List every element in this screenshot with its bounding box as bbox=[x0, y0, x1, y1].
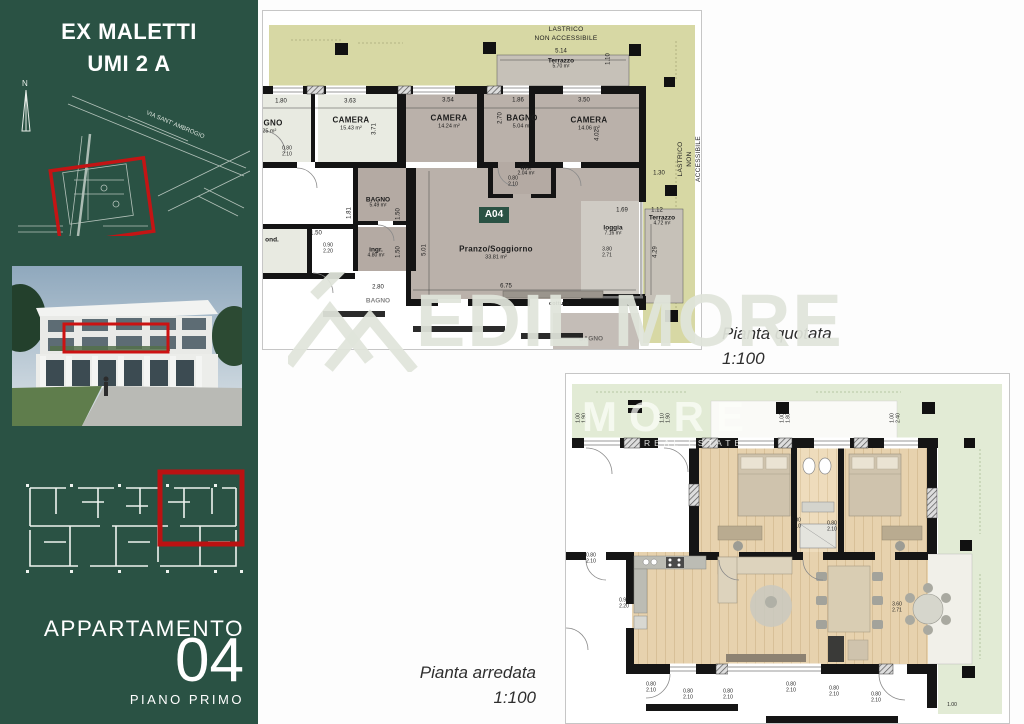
dim-label: 1.12 bbox=[651, 208, 663, 215]
dim-label: 5.01 bbox=[422, 244, 429, 256]
dim-label: 1.81 bbox=[347, 207, 354, 219]
plan-arredata-caption: Pianta arredata 1:100 bbox=[398, 661, 536, 710]
dim-label: 3.71 bbox=[372, 123, 379, 135]
room-label: BAGNO7.25 m² bbox=[262, 120, 283, 135]
project-title: EX MALETTI UMI 2 A bbox=[0, 16, 258, 80]
dim-label: 1.50 bbox=[396, 208, 403, 220]
door-dim-label: 0.80 2.10 bbox=[723, 689, 733, 701]
svg-text:N: N bbox=[22, 79, 28, 88]
dim-label: 5.14 bbox=[555, 49, 567, 56]
door-dim-label: 0.80 2.10 bbox=[586, 553, 596, 565]
door-dim-label: 3.80 2.71 bbox=[602, 247, 612, 259]
plan-arredata-drawing bbox=[566, 374, 1009, 723]
door-dim-label: 0.80 2.10 bbox=[829, 686, 839, 698]
project-title-line2: UMI 2 A bbox=[0, 48, 258, 80]
door-dim-label: 0.80 2.10 bbox=[282, 146, 292, 158]
room-label: BAGNO5.04 m² bbox=[506, 115, 537, 130]
door-dim-label: 0.80 2.10 bbox=[871, 692, 881, 704]
dim-label: 1.00 1.80 bbox=[780, 413, 792, 423]
door-dim-label: 3.60 2.71 bbox=[892, 602, 902, 614]
dim-label: 1.00 2.40 bbox=[890, 413, 902, 423]
room-label: Pranzo/Soggiorno33.81 m² bbox=[459, 246, 533, 261]
room-label: cottura bbox=[549, 301, 569, 307]
door-dim-label: 0.80 2.10 bbox=[683, 689, 693, 701]
room-label: ingr.4.80 m² bbox=[368, 247, 385, 260]
dim-label: 1.10 1.90 bbox=[660, 413, 672, 423]
room-label: dis.2.04 m² bbox=[518, 165, 535, 178]
door-dim-label: 0.80 2.10 bbox=[786, 682, 796, 694]
dim-label: 6.75 bbox=[500, 284, 512, 291]
dim-label: 1.30 bbox=[653, 171, 665, 178]
room-label: BAGNO bbox=[579, 335, 603, 342]
lastrico-label: LASTRICO NON ACCESSIBILE bbox=[534, 26, 597, 44]
door-dim-label: 0.90 2.20 bbox=[619, 598, 629, 610]
dim-label: 3.54 bbox=[442, 98, 454, 105]
room-label: CAMERA14.06 m² bbox=[571, 117, 608, 132]
lastrico-label: LASTRICO NON ACCESSIBILE bbox=[677, 136, 702, 182]
caption-title: Pianta arredata bbox=[398, 661, 536, 686]
door-dim-label: 0.90 2.20 bbox=[323, 243, 333, 255]
room-label: CAMERA15.43 m² bbox=[333, 117, 370, 132]
door-dim-label: 0.80 2.10 bbox=[791, 518, 801, 530]
plan-quotata: BAGNO7.25 m² CAMERA15.43 m² CAMERA14.24 … bbox=[262, 10, 702, 350]
door-dim-label: 1.00 bbox=[947, 703, 957, 709]
floor-overview-image bbox=[8, 466, 250, 592]
sidebar: EX MALETTI UMI 2 A bbox=[0, 0, 258, 724]
dim-label: 1.10 bbox=[606, 53, 613, 65]
plan-quotata-caption: Pianta quotata 1:100 bbox=[722, 322, 832, 371]
dim-label: 2.80 bbox=[372, 285, 384, 292]
apartment-number: 04 bbox=[0, 630, 244, 692]
brochure-page: EX MALETTI UMI 2 A bbox=[0, 0, 1024, 724]
dim-label: 1.00 1.90 bbox=[576, 413, 588, 423]
site-map-image: N VIA SANT' AMBROGIO bbox=[8, 76, 250, 236]
dim-label: 1.80 bbox=[275, 99, 287, 106]
dim-label: 4.29 bbox=[653, 246, 660, 258]
building-render-image bbox=[12, 266, 242, 426]
plan-arredata: MORE REAL ESTATE 1.00 1.90 1.10 1.90 1.0… bbox=[565, 373, 1010, 724]
floor-label: PIANO PRIMO bbox=[0, 692, 244, 707]
dim-label: 1.50 bbox=[396, 246, 403, 258]
caption-scale: 1:100 bbox=[398, 686, 536, 711]
door-dim-label: 0.80 2.10 bbox=[646, 682, 656, 694]
dim-label: 1.69 bbox=[616, 208, 628, 215]
unit-badge: A04 bbox=[479, 207, 509, 223]
room-label: loggia7.16 m² bbox=[603, 225, 622, 238]
dim-label: 3.50 bbox=[578, 98, 590, 105]
dim-label: 2.70 bbox=[498, 112, 505, 124]
caption-title: Pianta quotata bbox=[722, 322, 832, 347]
room-label: Terrazzo5.70 m² bbox=[548, 58, 574, 71]
door-dim-label: 0.80 2.10 bbox=[827, 521, 837, 533]
dim-label: 1.50 bbox=[310, 231, 322, 238]
caption-scale: 1:100 bbox=[722, 347, 832, 372]
plan-quotata-drawing bbox=[263, 11, 701, 349]
room-label: CAMERA14.24 m² bbox=[431, 115, 468, 130]
project-title-line1: EX MALETTI bbox=[0, 16, 258, 48]
room-label: BAGNO bbox=[366, 297, 390, 304]
room-label: ond. bbox=[265, 236, 279, 243]
door-dim-label: 0.80 2.10 bbox=[508, 176, 518, 188]
dim-label: 4.02 bbox=[595, 129, 602, 141]
dim-label: 1.86 bbox=[512, 98, 524, 105]
dim-label: 3.63 bbox=[344, 99, 356, 106]
room-label: BAGNO5.49 m² bbox=[366, 197, 390, 210]
room-label: Terrazzo4.72 m² bbox=[649, 215, 675, 228]
